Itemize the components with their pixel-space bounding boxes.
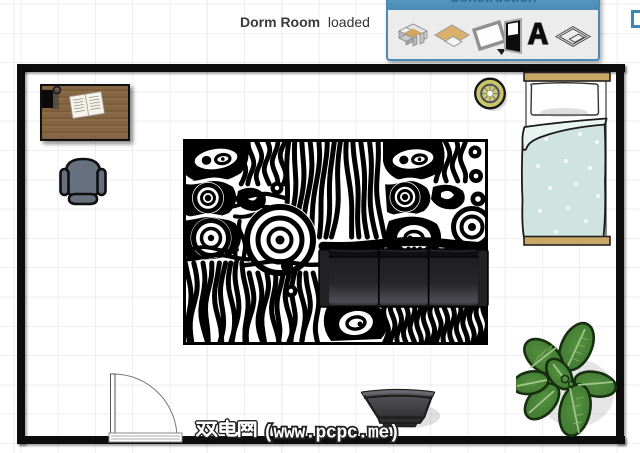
svg-text:(www.pcpc.me): (www.pcpc.me): [263, 424, 400, 444]
